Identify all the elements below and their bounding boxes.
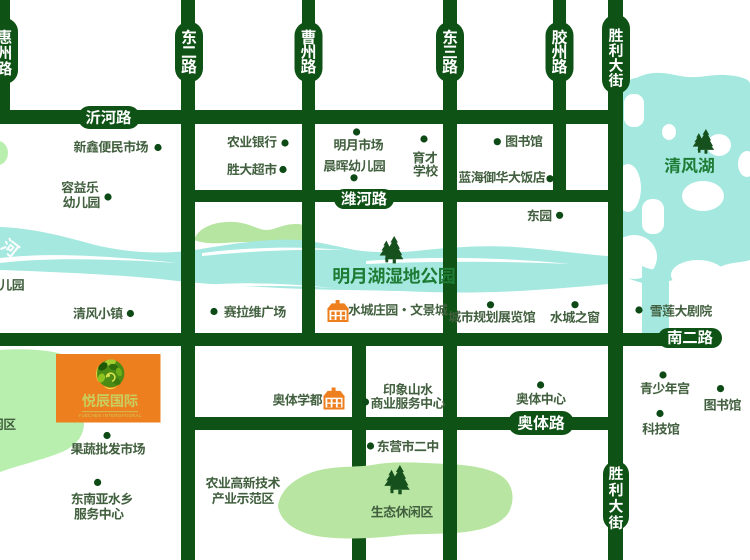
svg-text:YUECHEN INTERNATIONAL: YUECHEN INTERNATIONAL [78,413,142,418]
